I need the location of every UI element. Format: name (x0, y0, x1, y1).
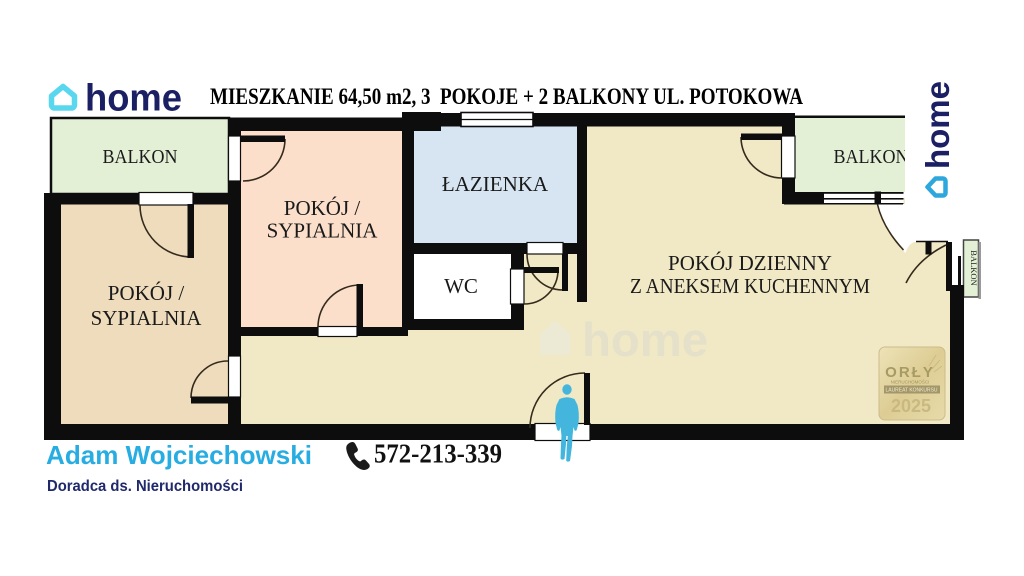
svg-text:ŁAZIENKA: ŁAZIENKA (442, 172, 549, 196)
svg-text:Adam Wojciechowski: Adam Wojciechowski (46, 440, 312, 470)
svg-text:MIESZKANIE 64,50 m2, 3 POKOJE: MIESZKANIE 64,50 m2, 3 POKOJE + 2 BALKON… (210, 84, 803, 109)
svg-text:SYPIALNIA: SYPIALNIA (267, 219, 379, 243)
svg-text:SYPIALNIA: SYPIALNIA (91, 306, 203, 330)
svg-text:572-213-339: 572-213-339 (374, 439, 502, 469)
svg-text:WC: WC (444, 274, 478, 298)
svg-text:POKÓJ /: POKÓJ / (284, 196, 361, 220)
svg-text:LAUREAT KONKURSU: LAUREAT KONKURSU (886, 388, 938, 394)
svg-text:Doradca ds. Nieruchomości: Doradca ds. Nieruchomości (47, 478, 243, 495)
svg-text:POKÓJ DZIENNY: POKÓJ DZIENNY (668, 251, 832, 275)
svg-text:home: home (919, 81, 956, 169)
svg-text:BALKON: BALKON (103, 146, 178, 168)
svg-text:2025: 2025 (891, 396, 931, 416)
svg-text:Z ANEKSEM KUCHENNYM: Z ANEKSEM KUCHENNYM (630, 274, 870, 298)
svg-text:NIERUCHOMOŚCI: NIERUCHOMOŚCI (891, 378, 930, 385)
svg-text:home: home (582, 313, 708, 366)
svg-text:ORŁY: ORŁY (885, 364, 935, 381)
svg-text:POKÓJ /: POKÓJ / (108, 281, 185, 305)
svg-text:BALKON: BALKON (969, 250, 979, 285)
svg-text:BALKON: BALKON (834, 146, 909, 168)
svg-text:home: home (85, 78, 182, 120)
